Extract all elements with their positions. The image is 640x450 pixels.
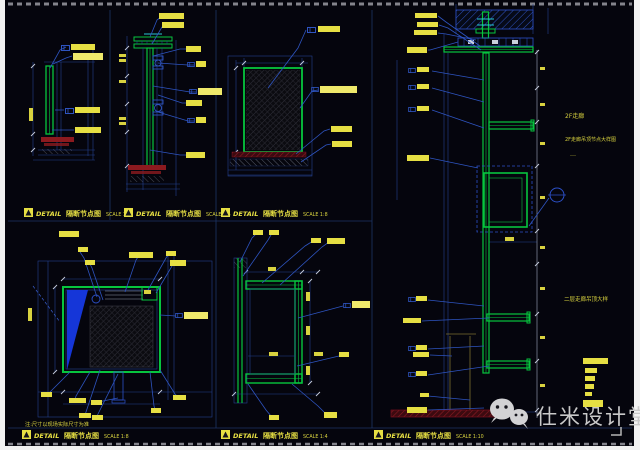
location-label-mid: 二层走廊吊顶大样 xyxy=(564,295,609,303)
detail-label: DETAIL xyxy=(34,432,59,440)
base-hatch xyxy=(230,159,308,166)
drawing-note: 注:尺寸以现场实际尺寸为准 xyxy=(25,420,89,428)
cad-canvas: 2F走廊 2F走廊吊顶节点大样图 … 二层走廊吊顶大样 xyxy=(0,0,640,450)
floor-finish-label xyxy=(41,137,74,142)
location-label-small: 2F走廊 xyxy=(565,112,584,120)
detail-name: 隔断节点图 xyxy=(416,431,451,440)
detail-name: 隔断节点图 xyxy=(263,431,298,440)
detail-scale: SCALE 1:10 xyxy=(456,434,484,440)
concrete-slab-hatch xyxy=(456,10,533,29)
cad-sheet: 2F走廊 2F走廊吊顶节点大样图 … 二层走廊吊顶大样 xyxy=(0,0,640,450)
floor-finish-label xyxy=(128,165,166,170)
model-space xyxy=(5,0,634,446)
detail-scale: SCALE 1:8 xyxy=(104,434,129,440)
dim-text xyxy=(28,308,32,321)
detail-label: DETAIL xyxy=(386,432,411,440)
detail-name: 隔断节点图 xyxy=(64,431,99,440)
ellipsis-dots: … xyxy=(570,151,576,158)
panel-hatch-fill xyxy=(90,306,153,367)
base-red-strip xyxy=(232,152,306,157)
dim-text xyxy=(29,108,33,121)
detail-name: 隔断节点图 xyxy=(263,209,298,218)
detail-label: DETAIL xyxy=(36,210,61,218)
detail-label: DETAIL xyxy=(233,210,258,218)
detail-scale: SCALE 1:4 xyxy=(303,434,328,440)
detail-label: DETAIL xyxy=(136,210,161,218)
location-label-long: 2F走廊吊顶节点大样图 xyxy=(565,136,616,143)
detail-scale: SCALE 1:8 xyxy=(303,212,328,218)
detail-label: DETAIL xyxy=(233,432,258,440)
detail-name: 隔断节点图 xyxy=(66,209,101,218)
detail-name: 隔断节点图 xyxy=(166,209,201,218)
watermark-text: 仕米设计堂 xyxy=(536,405,640,429)
